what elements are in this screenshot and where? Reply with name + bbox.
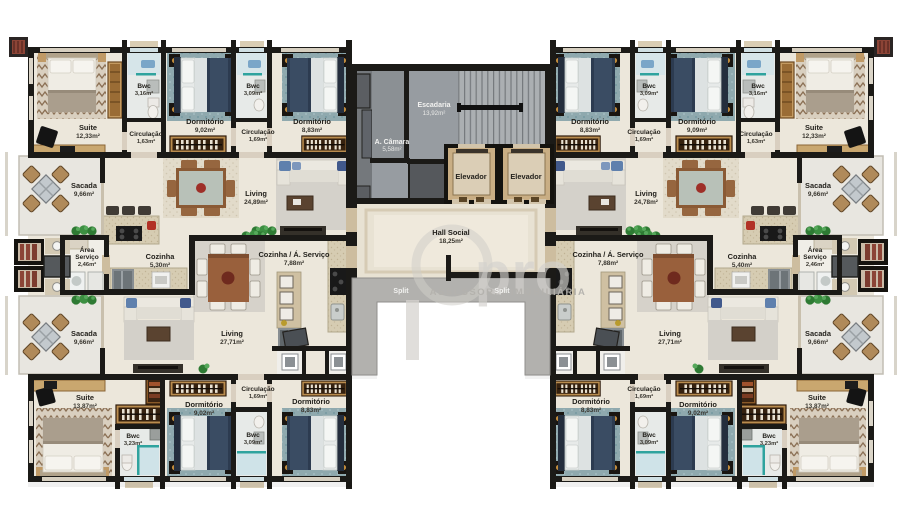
svg-text:Serviço: Serviço — [75, 254, 99, 261]
svg-text:9,66m²: 9,66m² — [74, 191, 94, 198]
svg-text:Hall Social: Hall Social — [432, 228, 469, 237]
svg-text:2,46m²: 2,46m² — [806, 261, 824, 268]
svg-text:Cozinha / Á. Serviço: Cozinha / Á. Serviço — [258, 250, 330, 259]
svg-text:A. Câmara: A. Câmara — [375, 139, 410, 146]
svg-text:Cozinha / Á. Serviço: Cozinha / Á. Serviço — [572, 250, 644, 259]
svg-text:1,69m²: 1,69m² — [249, 136, 267, 143]
svg-text:Suite: Suite — [805, 123, 823, 132]
svg-text:7,88m²: 7,88m² — [284, 260, 304, 267]
svg-text:3,23m²: 3,23m² — [124, 440, 142, 447]
svg-text:3,09m²: 3,09m² — [640, 90, 658, 97]
svg-text:Bwc: Bwc — [126, 433, 140, 440]
svg-text:Escadaria: Escadaria — [417, 102, 450, 109]
svg-text:8,83m²: 8,83m² — [302, 127, 322, 134]
svg-text:Split: Split — [494, 288, 510, 295]
svg-text:1,69m²: 1,69m² — [249, 393, 267, 400]
svg-text:3,09m²: 3,09m² — [640, 439, 658, 446]
svg-text:Split: Split — [393, 288, 409, 295]
svg-text:Dormitório: Dormitório — [185, 400, 223, 409]
svg-text:Living: Living — [221, 329, 243, 338]
svg-text:9,66m²: 9,66m² — [808, 191, 828, 198]
svg-text:13,87m²: 13,87m² — [73, 403, 97, 410]
svg-text:1,69m²: 1,69m² — [635, 136, 653, 143]
svg-text:9,66m²: 9,66m² — [74, 339, 94, 346]
svg-text:13,92m²: 13,92m² — [423, 110, 446, 117]
svg-text:Bwc: Bwc — [751, 83, 765, 90]
svg-text:9,09m²: 9,09m² — [687, 127, 707, 134]
svg-text:27,71m²: 27,71m² — [220, 339, 244, 346]
svg-text:3,09m²: 3,09m² — [244, 439, 262, 446]
svg-text:9,66m²: 9,66m² — [808, 339, 828, 346]
svg-text:12,33m²: 12,33m² — [802, 133, 826, 140]
svg-text:5,40m²: 5,40m² — [732, 262, 752, 269]
svg-text:Elevador: Elevador — [510, 172, 541, 181]
svg-text:9,02m²: 9,02m² — [195, 127, 215, 134]
svg-text:3,16m²: 3,16m² — [135, 90, 153, 97]
svg-text:5,30m²: 5,30m² — [150, 262, 170, 269]
svg-text:18,25m²: 18,25m² — [439, 238, 463, 245]
svg-text:12,33m²: 12,33m² — [76, 133, 100, 140]
svg-text:Cozinha: Cozinha — [146, 252, 176, 261]
svg-text:3,09m²: 3,09m² — [244, 90, 262, 97]
svg-text:Elevador: Elevador — [455, 172, 486, 181]
svg-text:Suite: Suite — [76, 393, 94, 402]
svg-text:3,23m²: 3,23m² — [760, 440, 778, 447]
svg-text:27,71m²: 27,71m² — [658, 339, 682, 346]
svg-text:Bwc: Bwc — [246, 432, 260, 439]
svg-text:Circulação: Circulação — [241, 129, 274, 136]
svg-text:8,83m²: 8,83m² — [301, 407, 321, 414]
svg-text:5,58m²: 5,58m² — [382, 146, 401, 153]
svg-text:Área: Área — [808, 245, 823, 254]
svg-text:24,89m²: 24,89m² — [244, 199, 268, 206]
svg-text:8,83m²: 8,83m² — [581, 407, 601, 414]
svg-text:3,16m²: 3,16m² — [749, 90, 767, 97]
svg-text:Dormitório: Dormitório — [571, 117, 609, 126]
svg-text:Dormitório: Dormitório — [292, 397, 330, 406]
svg-text:Sacada: Sacada — [805, 329, 832, 338]
svg-text:Circulação: Circulação — [627, 129, 660, 136]
svg-text:Bwc: Bwc — [137, 83, 151, 90]
svg-text:Circulação: Circulação — [627, 386, 660, 393]
svg-text:Dormitório: Dormitório — [293, 117, 331, 126]
svg-text:Bwc: Bwc — [246, 83, 260, 90]
svg-text:24,78m²: 24,78m² — [634, 199, 658, 206]
svg-text:Living: Living — [635, 189, 657, 198]
svg-text:1,69m²: 1,69m² — [635, 393, 653, 400]
svg-text:Área: Área — [80, 245, 95, 254]
svg-text:Circulação: Circulação — [241, 386, 274, 393]
svg-text:8,83m²: 8,83m² — [580, 127, 600, 134]
svg-text:1,63m²: 1,63m² — [137, 138, 155, 145]
svg-text:Bwc: Bwc — [642, 432, 656, 439]
svg-text:7,88m²: 7,88m² — [598, 260, 618, 267]
svg-text:1,63m²: 1,63m² — [747, 138, 765, 145]
svg-text:Dormitório: Dormitório — [679, 400, 717, 409]
svg-text:Bwc: Bwc — [642, 83, 656, 90]
svg-text:9,02m²: 9,02m² — [688, 410, 708, 417]
svg-text:Sacada: Sacada — [805, 181, 832, 190]
svg-text:Dormitório: Dormitório — [678, 117, 716, 126]
svg-text:Dormitório: Dormitório — [186, 117, 224, 126]
svg-text:Dormitório: Dormitório — [572, 397, 610, 406]
svg-text:Circulação: Circulação — [129, 131, 162, 138]
svg-text:Living: Living — [245, 189, 267, 198]
svg-text:Sacada: Sacada — [71, 181, 98, 190]
svg-text:Bwc: Bwc — [762, 433, 776, 440]
svg-text:Suite: Suite — [79, 123, 97, 132]
svg-text:Cozinha: Cozinha — [728, 252, 758, 261]
svg-text:2,46m²: 2,46m² — [78, 261, 96, 268]
svg-text:Serviço: Serviço — [803, 254, 827, 261]
svg-text:Sacada: Sacada — [71, 329, 98, 338]
svg-text:Living: Living — [659, 329, 681, 338]
svg-text:Circulação: Circulação — [739, 131, 772, 138]
svg-text:Suite: Suite — [808, 393, 826, 402]
svg-text:13,87m²: 13,87m² — [805, 403, 829, 410]
svg-text:9,02m²: 9,02m² — [194, 410, 214, 417]
